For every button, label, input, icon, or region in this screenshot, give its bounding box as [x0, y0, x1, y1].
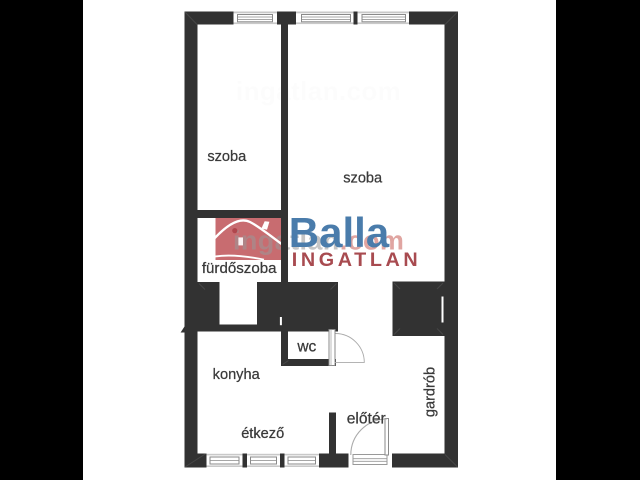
- svg-text:étkező: étkező: [241, 426, 284, 442]
- svg-text:gardrób: gardrób: [422, 367, 438, 417]
- svg-text:fürdőszoba: fürdőszoba: [202, 260, 277, 277]
- svg-text:INGATLAN: INGATLAN: [292, 249, 422, 271]
- svg-text:előtér: előtér: [347, 410, 386, 427]
- svg-text:szoba: szoba: [207, 149, 247, 165]
- svg-text:wc: wc: [296, 339, 316, 356]
- svg-text:szoba: szoba: [343, 171, 383, 187]
- svg-text:konyha: konyha: [213, 367, 261, 383]
- svg-text:ingatlan.com: ingatlan.com: [236, 76, 401, 106]
